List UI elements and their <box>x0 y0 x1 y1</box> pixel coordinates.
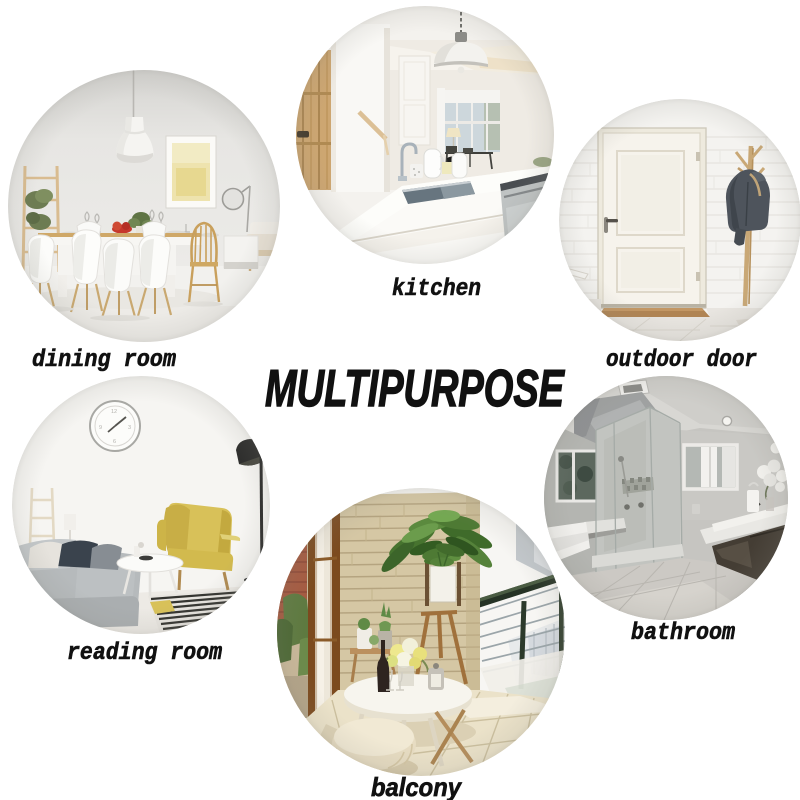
svg-text:MULTIPURPOSE: MULTIPURPOSE <box>265 360 565 418</box>
svg-text:dining room: dining room <box>32 347 177 374</box>
svg-text:kitchen: kitchen <box>392 276 481 303</box>
svg-text:reading room: reading room <box>67 640 223 667</box>
svg-text:outdoor door: outdoor door <box>606 347 757 374</box>
svg-text:bathroom: bathroom <box>631 620 736 647</box>
svg-text:balcony: balcony <box>371 772 462 800</box>
